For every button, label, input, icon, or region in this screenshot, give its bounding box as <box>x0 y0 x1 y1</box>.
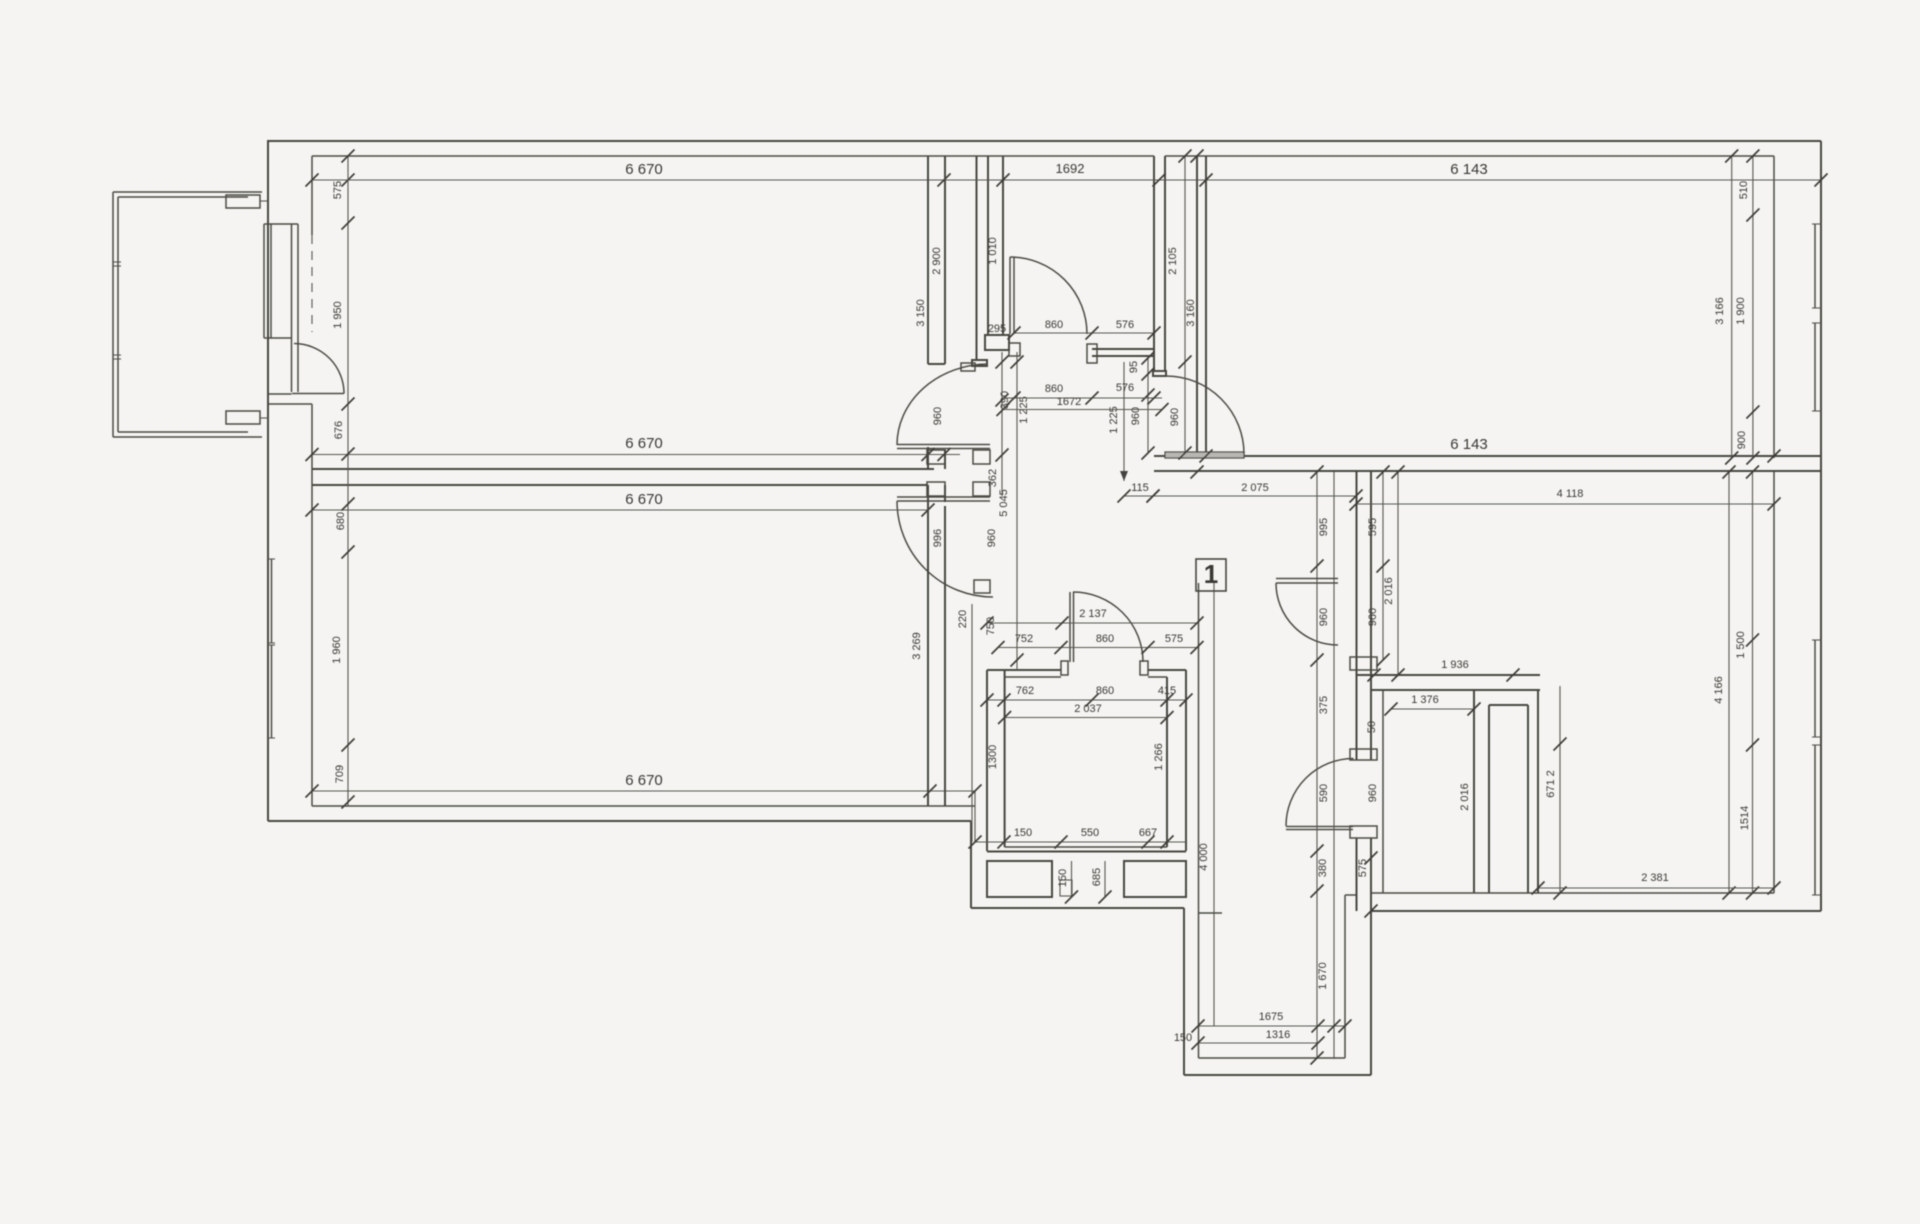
svg-text:5 045: 5 045 <box>998 489 1010 517</box>
svg-text:1 376: 1 376 <box>1411 694 1439 706</box>
svg-text:415: 415 <box>1158 685 1176 697</box>
svg-text:1675: 1675 <box>1259 1011 1283 1023</box>
svg-text:3 150: 3 150 <box>915 299 927 327</box>
svg-text:576: 576 <box>1116 382 1134 394</box>
svg-text:2 105: 2 105 <box>1167 247 1179 275</box>
svg-text:4 000: 4 000 <box>1198 843 1210 871</box>
svg-text:960: 960 <box>1169 408 1181 426</box>
svg-text:115: 115 <box>1131 482 1149 494</box>
svg-text:4 166: 4 166 <box>1713 676 1725 704</box>
svg-text:576: 576 <box>1116 319 1134 331</box>
svg-text:150: 150 <box>1174 1032 1192 1044</box>
svg-text:2 137: 2 137 <box>1079 608 1107 620</box>
svg-text:1: 1 <box>1204 559 1218 589</box>
svg-text:667: 667 <box>1139 827 1157 839</box>
svg-text:960: 960 <box>1367 608 1379 626</box>
svg-text:375: 375 <box>1318 696 1330 714</box>
svg-text:50: 50 <box>1366 721 1378 733</box>
svg-text:1672: 1672 <box>1057 396 1081 408</box>
svg-text:685: 685 <box>1091 868 1103 886</box>
svg-text:2 016: 2 016 <box>1383 577 1395 605</box>
svg-text:1 225: 1 225 <box>1108 406 1120 434</box>
svg-text:860: 860 <box>1045 383 1063 395</box>
svg-text:996: 996 <box>932 529 944 547</box>
svg-text:860: 860 <box>1096 633 1114 645</box>
svg-text:6 670: 6 670 <box>625 491 663 508</box>
svg-text:2 037: 2 037 <box>1074 703 1102 715</box>
svg-text:6 670: 6 670 <box>625 772 663 789</box>
svg-text:1 500: 1 500 <box>1735 631 1747 659</box>
svg-text:1 936: 1 936 <box>1441 659 1469 671</box>
svg-text:960: 960 <box>1367 784 1379 802</box>
svg-text:590: 590 <box>1318 784 1330 802</box>
svg-text:1 960: 1 960 <box>331 636 343 664</box>
svg-text:2 900: 2 900 <box>931 247 943 275</box>
svg-text:762: 762 <box>1016 685 1034 697</box>
svg-text:3 160: 3 160 <box>1185 299 1197 327</box>
svg-text:995: 995 <box>1318 518 1330 536</box>
svg-text:960: 960 <box>986 529 998 547</box>
svg-text:2 016: 2 016 <box>1459 783 1471 811</box>
svg-text:709: 709 <box>334 765 346 783</box>
svg-text:3 269: 3 269 <box>911 632 923 660</box>
svg-text:510: 510 <box>1738 181 1750 199</box>
svg-text:95: 95 <box>1128 361 1140 373</box>
svg-text:1 900: 1 900 <box>1735 297 1747 325</box>
svg-text:220: 220 <box>957 610 969 628</box>
svg-text:150: 150 <box>1057 869 1069 887</box>
svg-text:4 118: 4 118 <box>1557 488 1584 500</box>
svg-text:960: 960 <box>932 407 944 425</box>
svg-text:6 670: 6 670 <box>625 161 663 178</box>
svg-text:3 166: 3 166 <box>1714 297 1726 325</box>
svg-text:295: 295 <box>988 323 1006 335</box>
svg-text:575: 575 <box>332 181 344 199</box>
svg-text:680: 680 <box>335 512 347 530</box>
svg-text:1 950: 1 950 <box>332 301 344 329</box>
svg-text:1692: 1692 <box>1056 161 1085 176</box>
svg-text:900: 900 <box>1736 431 1748 449</box>
svg-text:362: 362 <box>987 469 999 487</box>
svg-text:150: 150 <box>1014 827 1032 839</box>
svg-text:575: 575 <box>1165 633 1183 645</box>
svg-text:676: 676 <box>333 421 345 439</box>
svg-text:2 381: 2 381 <box>1641 872 1669 884</box>
svg-text:752: 752 <box>1015 633 1033 645</box>
svg-text:1316: 1316 <box>1266 1029 1290 1041</box>
svg-text:860: 860 <box>1096 685 1114 697</box>
svg-text:550: 550 <box>1081 827 1099 839</box>
svg-text:595: 595 <box>1367 518 1379 536</box>
svg-text:671 2: 671 2 <box>1545 770 1557 798</box>
svg-text:1514: 1514 <box>1739 806 1751 830</box>
svg-text:2 075: 2 075 <box>1241 482 1269 494</box>
svg-text:1 010: 1 010 <box>987 237 999 265</box>
svg-text:6 143: 6 143 <box>1450 436 1488 453</box>
svg-text:6 143: 6 143 <box>1450 161 1488 178</box>
svg-text:1300: 1300 <box>987 745 999 769</box>
svg-text:860: 860 <box>1045 319 1063 331</box>
svg-text:960: 960 <box>1318 608 1330 626</box>
svg-text:6 670: 6 670 <box>625 435 663 452</box>
svg-text:1 266: 1 266 <box>1153 743 1165 771</box>
svg-text:1 670: 1 670 <box>1317 962 1329 990</box>
svg-text:380: 380 <box>1317 859 1329 877</box>
